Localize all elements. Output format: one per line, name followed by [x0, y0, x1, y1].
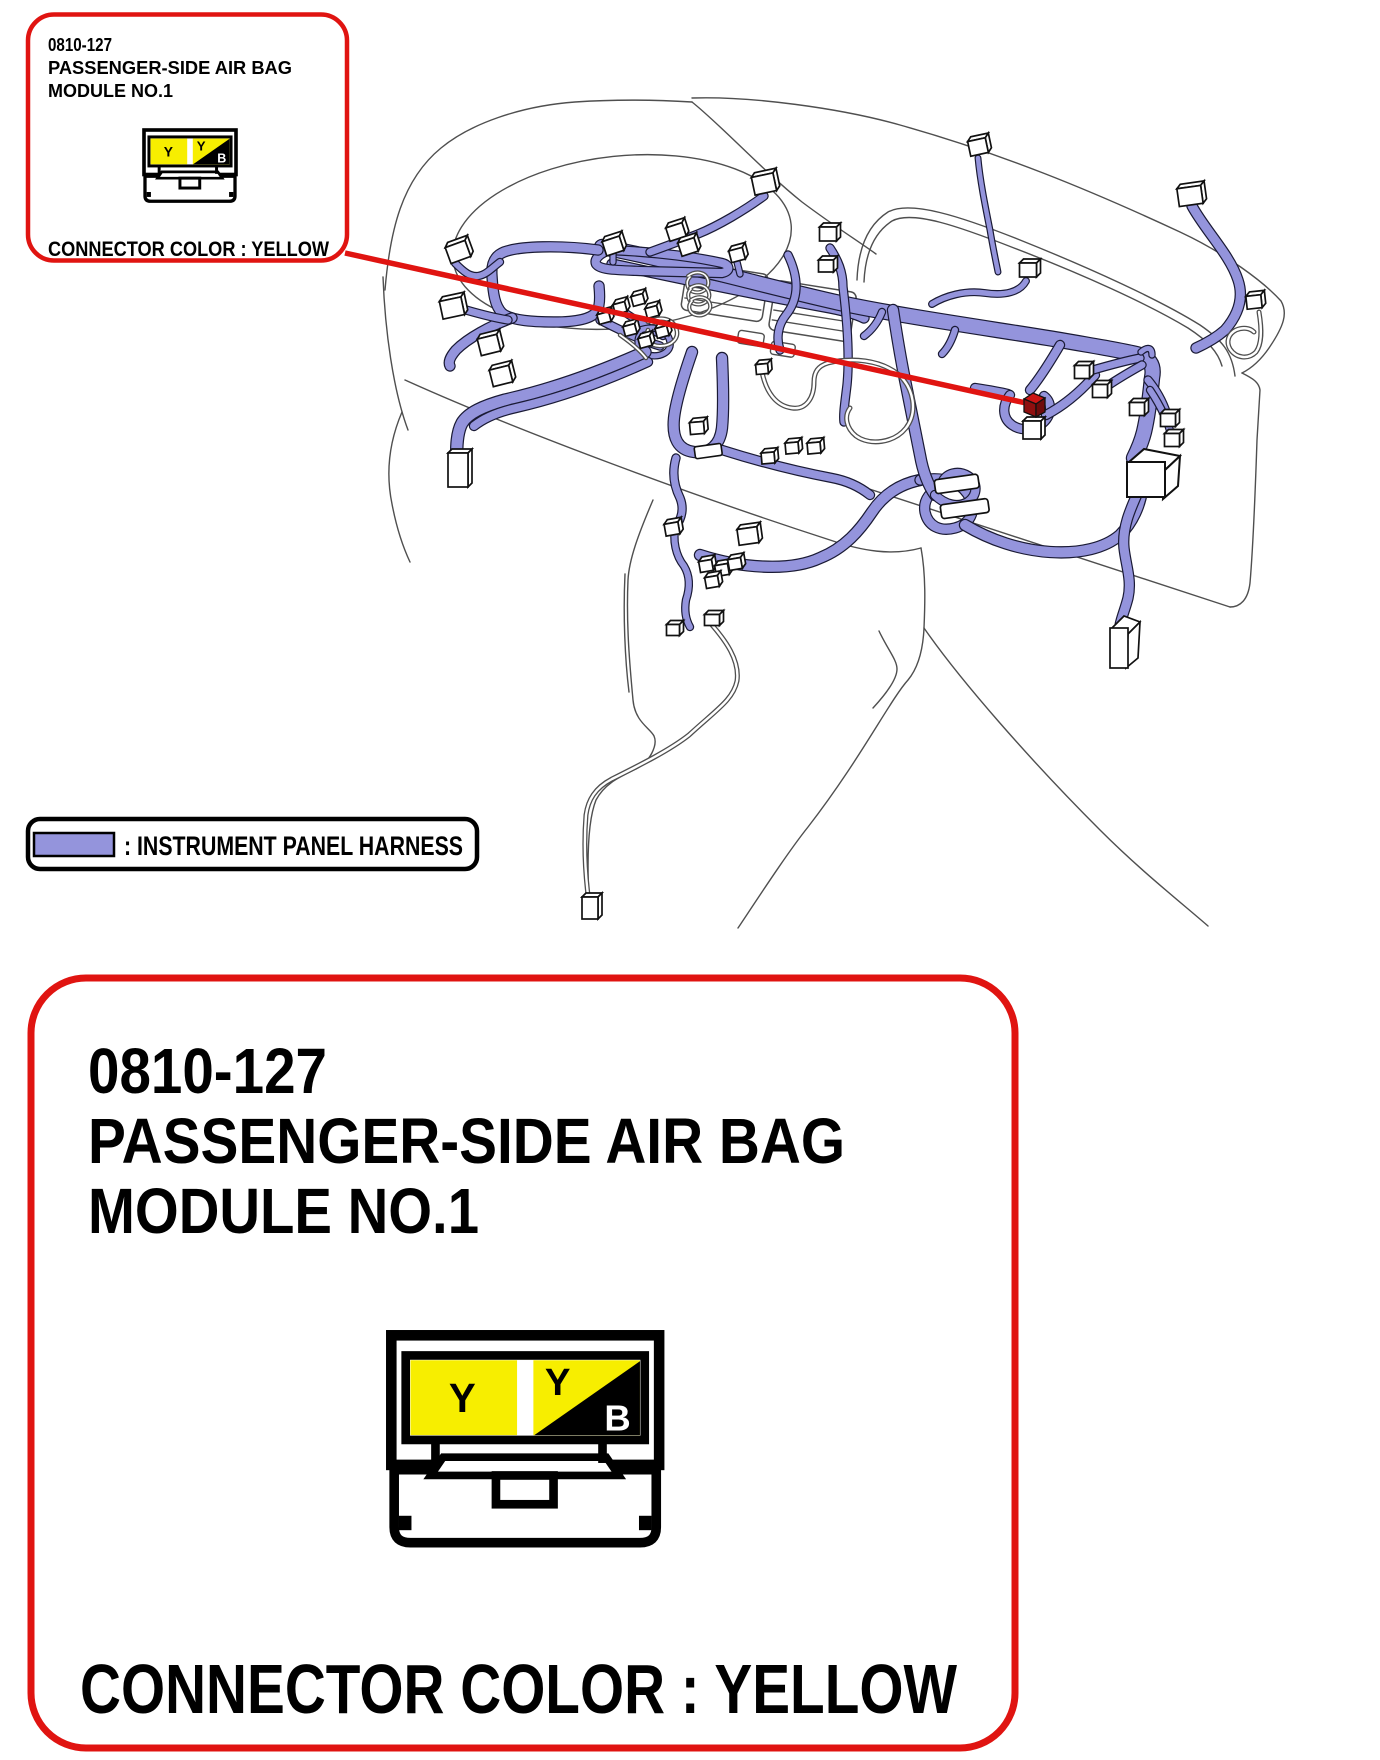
svg-text:MODULE NO.1: MODULE NO.1	[88, 1175, 479, 1247]
svg-text:PASSENGER-SIDE AIR BAG: PASSENGER-SIDE AIR BAG	[88, 1105, 845, 1177]
svg-text:Y: Y	[545, 1361, 571, 1404]
svg-text:PASSENGER-SIDE AIR BAG: PASSENGER-SIDE AIR BAG	[48, 57, 292, 78]
svg-text:B: B	[217, 152, 226, 166]
svg-text:0810-127: 0810-127	[88, 1035, 327, 1107]
svg-text:Y: Y	[449, 1375, 476, 1421]
svg-text:MODULE NO.1: MODULE NO.1	[48, 80, 173, 101]
svg-text:CONNECTOR COLOR : YELLOW: CONNECTOR COLOR : YELLOW	[80, 1650, 957, 1728]
svg-text:CONNECTOR COLOR : YELLOW: CONNECTOR COLOR : YELLOW	[48, 238, 329, 261]
svg-text:B: B	[604, 1397, 630, 1438]
svg-text:0810-127: 0810-127	[48, 34, 112, 55]
svg-text:Y: Y	[164, 143, 173, 159]
svg-text:: INSTRUMENT PANEL HARNESS: : INSTRUMENT PANEL HARNESS	[124, 831, 463, 861]
svg-text:Y: Y	[197, 138, 206, 153]
